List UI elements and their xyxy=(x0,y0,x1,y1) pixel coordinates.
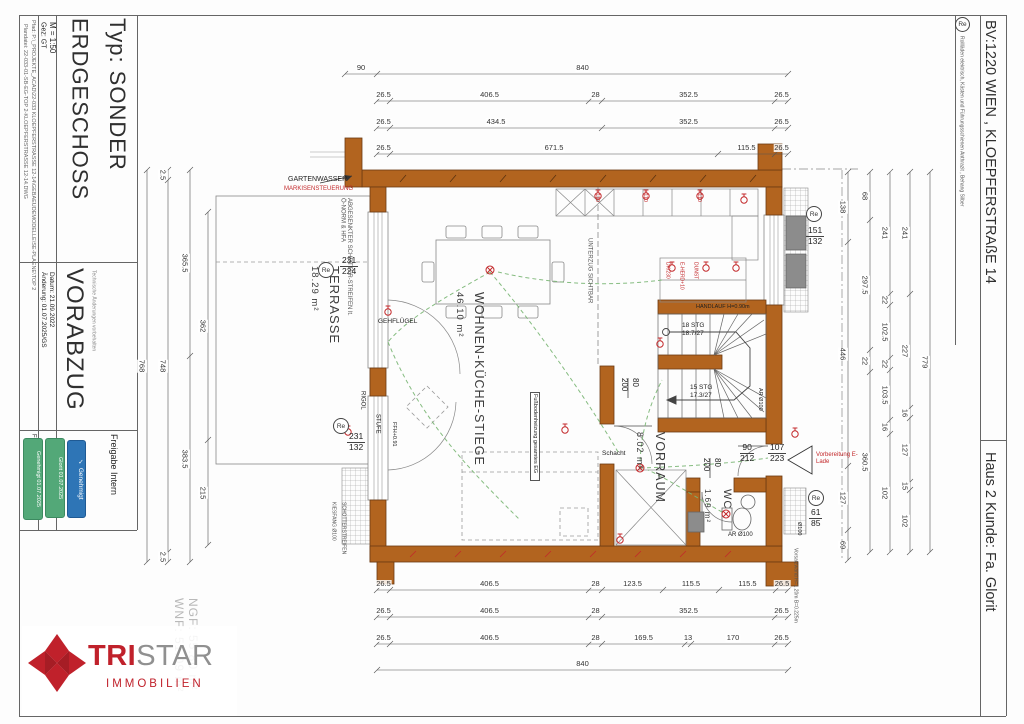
stair-flight-low-label: 15 STG xyxy=(690,384,712,391)
dimension-label: 28 xyxy=(590,580,600,588)
door-tag-living-height: 200 xyxy=(619,378,628,391)
dimension-label: 26.5 xyxy=(375,580,392,588)
drain-channel-label: RIGOL xyxy=(359,391,366,410)
window-tag-left-bottom: 231132 xyxy=(347,432,365,453)
dimension-label: 28 xyxy=(590,607,600,615)
stair-rise-up-label: 18.7/27 xyxy=(682,330,704,337)
dimension-label: 227 xyxy=(900,345,910,358)
disclaimer-label: Technische Änderungen vorbehalten xyxy=(90,270,96,351)
door-tag-wc-width: 80 xyxy=(712,458,721,467)
room-label-vorraum: VORRAUM 8.02 m² xyxy=(630,432,670,544)
internal-release-label: Freigabe Intern xyxy=(108,434,118,495)
floorplan-drawing xyxy=(0,0,1024,724)
gravel-trap-label: KIESFANG Ø100 xyxy=(330,502,336,541)
outlet-height-label: +110 xyxy=(642,190,648,202)
dimension-label: 169.5 xyxy=(633,634,654,642)
dimension-label: 16 xyxy=(900,409,910,417)
stair-flight-up-label: 18 STG xyxy=(682,322,704,329)
gravel-strip-bottom-label: SCHOTTERSTREIFEN xyxy=(340,502,346,554)
house-customer-label: Haus 2 Kunde: Fa. Glorit xyxy=(982,452,998,712)
dimension-label: 26.5 xyxy=(375,634,392,642)
file-path-label: Pfad: P:\_PROJEKTE_ACAD\22-033 KLOEPFERS… xyxy=(30,20,36,290)
dimension-label: 26.5 xyxy=(375,607,392,615)
logo-block: TRISTAR IMMOBILIEN xyxy=(22,626,237,716)
stair-rise-low-label: 17.3/27 xyxy=(690,392,712,399)
dimension-label: 102.5 xyxy=(880,322,890,341)
dimension-label: 26.5 xyxy=(773,634,790,642)
ev-charging-note: Vorbereitung E-Lade xyxy=(816,452,866,465)
dimension-label: 406.5 xyxy=(479,634,500,642)
pipe-diameter-label: Ø100 xyxy=(796,522,802,535)
dimension-label: 115.5 xyxy=(737,580,757,588)
dimension-label: 13 xyxy=(683,634,693,642)
dimension-label: 360.5 xyxy=(860,453,870,472)
dimension-label: 123.5 xyxy=(622,580,643,588)
dimension-label: 15 xyxy=(900,482,910,490)
dimension-label: 352.5 xyxy=(678,118,699,126)
dimension-label: 446 xyxy=(838,348,848,361)
gravel-strip-note: ABGESENKTER SCHOTTER-STREIFEN lt. Ö-NORM… xyxy=(328,198,352,318)
door-leaf-label: GEHFLÜGEL xyxy=(378,318,417,325)
dimension-label: 127 xyxy=(900,444,910,457)
brand-sub: IMMOBILIEN xyxy=(106,678,204,690)
approval-stamp-glorit: Glorit 01.07.2025 xyxy=(45,438,65,518)
beam-visible-label: UNTERZUG SICHTBAR xyxy=(586,238,593,303)
tristar-logo-icon xyxy=(26,632,88,694)
approval-stamp-genehmigt: Genehmigt 01.07.2025 xyxy=(23,438,43,520)
dimension-label: 215 xyxy=(198,486,208,499)
dimension-label: 840 xyxy=(575,64,590,72)
dimension-label: 671.5 xyxy=(544,144,565,152)
dimension-label: 26.5 xyxy=(773,91,790,99)
date-label: Datum: 21.09.2022 xyxy=(48,272,55,327)
underfloor-heating-label: Fußbodenheizung gesamtes EG xyxy=(530,392,540,481)
file-name-label: Plandatei: 22-033-01-SB-EG-TOP 2-KLOEPFE… xyxy=(22,24,28,199)
floor-height-label: FFH+0.91 xyxy=(391,422,397,447)
awning-control-label: MARKISENSTEUERUNG xyxy=(284,186,353,193)
hood-label: DUNST xyxy=(692,262,698,279)
dimension-label: 768 xyxy=(137,360,147,373)
dimension-label: 26.5 xyxy=(375,144,392,152)
dimension-label: 26.5 xyxy=(773,118,790,126)
plan-sheet: { "symbols": { "re": "Re" }, "titleblock… xyxy=(0,0,1024,724)
approval-stamp-blue-label: Genehmigt xyxy=(77,468,84,500)
garden-water-label: GARTENWASSER xyxy=(288,176,347,184)
dimension-label: 2.5 xyxy=(158,552,168,562)
window-tag-right-bottom: 6185 xyxy=(809,508,822,529)
sheet-type-title: Typ: SONDER xyxy=(105,18,130,171)
double-socket-label: DK/230 xyxy=(664,262,670,279)
dimension-label: 352.5 xyxy=(678,607,699,615)
dimension-label: 365.5 xyxy=(180,254,190,273)
door-tag-living-width: 80 xyxy=(630,378,639,387)
check-icon: ✓ xyxy=(77,458,84,466)
dimension-label: 16 xyxy=(880,423,890,431)
dimension-label: 748 xyxy=(158,360,168,373)
dimension-label: 102 xyxy=(900,515,910,528)
dimension-label: 115.5 xyxy=(681,580,701,588)
dimension-label: 362 xyxy=(198,320,208,333)
door-tag-entry: 107223 xyxy=(768,443,786,464)
window-tag-right-top: 151132 xyxy=(806,226,824,247)
dimension-label: 68 xyxy=(860,192,870,200)
dimension-label: 170 xyxy=(726,634,741,642)
dimension-label: 102 xyxy=(880,487,890,500)
dimension-label: 22 xyxy=(860,357,870,365)
dimension-label: 241 xyxy=(880,227,890,240)
outlet-height-label: +110 xyxy=(696,190,702,202)
dimension-label: 840 xyxy=(575,660,590,668)
drawn-by-label: Gez: GT xyxy=(39,22,47,48)
door-tag-wc-height: 200 xyxy=(701,458,710,471)
revision-label: Änderung: 01.07.2025/GS xyxy=(40,272,47,348)
dimension-label: 26.5 xyxy=(375,91,392,99)
handrail-label: HANDLAUF H=0.90m xyxy=(696,304,750,310)
dimension-label: 297.5 xyxy=(860,276,870,295)
preliminary-print-label: VORABZUG xyxy=(60,268,88,433)
dimension-label: 90 xyxy=(356,64,366,72)
dimension-label: 241 xyxy=(900,227,910,240)
dimension-label: 127 xyxy=(838,492,848,505)
dimension-label: 26.5 xyxy=(773,144,790,152)
dimension-label: 352.5 xyxy=(678,91,699,99)
project-address-label: BV:1220 WIEN , KLOEPFERSTRAßE 14 xyxy=(982,20,998,430)
dimension-label: 26.5 xyxy=(375,118,392,126)
dimension-label: 26.5 xyxy=(773,607,790,615)
dimension-label: 406.5 xyxy=(479,580,500,588)
dimension-label: 28 xyxy=(590,91,600,99)
vent-pipe-stair-label: AR Ø100 xyxy=(757,388,763,411)
dimension-label: 103.5 xyxy=(880,386,890,405)
sheet-floor-title: ERDGESCHOSS xyxy=(68,18,93,200)
outlet-height-label: +110 xyxy=(594,190,600,202)
dimension-label: 115.5 xyxy=(736,144,756,152)
dimension-label: 406.5 xyxy=(479,607,500,615)
dimension-label: 22 xyxy=(880,360,890,368)
shaft-label: Schacht xyxy=(602,450,626,457)
vent-pipe-wc-label: AR Ø100 xyxy=(728,532,753,539)
re-icon: Re xyxy=(808,490,824,506)
step-label: STUFE xyxy=(374,414,381,434)
dimension-label: 383.5 xyxy=(180,450,190,469)
dimension-label: 28 xyxy=(590,634,600,642)
re-icon: Re xyxy=(806,206,822,222)
scale-label: M = 1:50 xyxy=(47,22,56,53)
dimension-label: 406.5 xyxy=(479,91,500,99)
dimension-label: 22 xyxy=(880,295,890,303)
brand-star: STAR xyxy=(136,640,213,672)
door-tag-vorraum: 90212 xyxy=(740,443,754,464)
dimension-label: 138 xyxy=(838,201,848,214)
dimension-label: 779 xyxy=(920,356,930,369)
furring-wall-label: Vorsatzwand H=1.20m B=0.225m xyxy=(792,548,798,620)
dimension-label: 434.5 xyxy=(486,118,507,126)
dimension-label: 69 xyxy=(838,541,848,549)
approval-stamp-blue: ✓ Genehmigt xyxy=(67,440,86,518)
dimension-label: 26.5 xyxy=(774,580,791,588)
re-icon: Re xyxy=(955,17,970,32)
shutter-note-label: Rollläden elektrisch, Kästen und Führung… xyxy=(958,36,964,336)
brand-tri: TRI xyxy=(88,640,136,672)
dimension-label: 2.5 xyxy=(158,170,168,180)
room-label-wohnen: WOHNEN-KÜCHE-STIEGE 46.10 m² xyxy=(449,292,489,472)
stove-label: E-HERD+10 xyxy=(678,262,684,290)
